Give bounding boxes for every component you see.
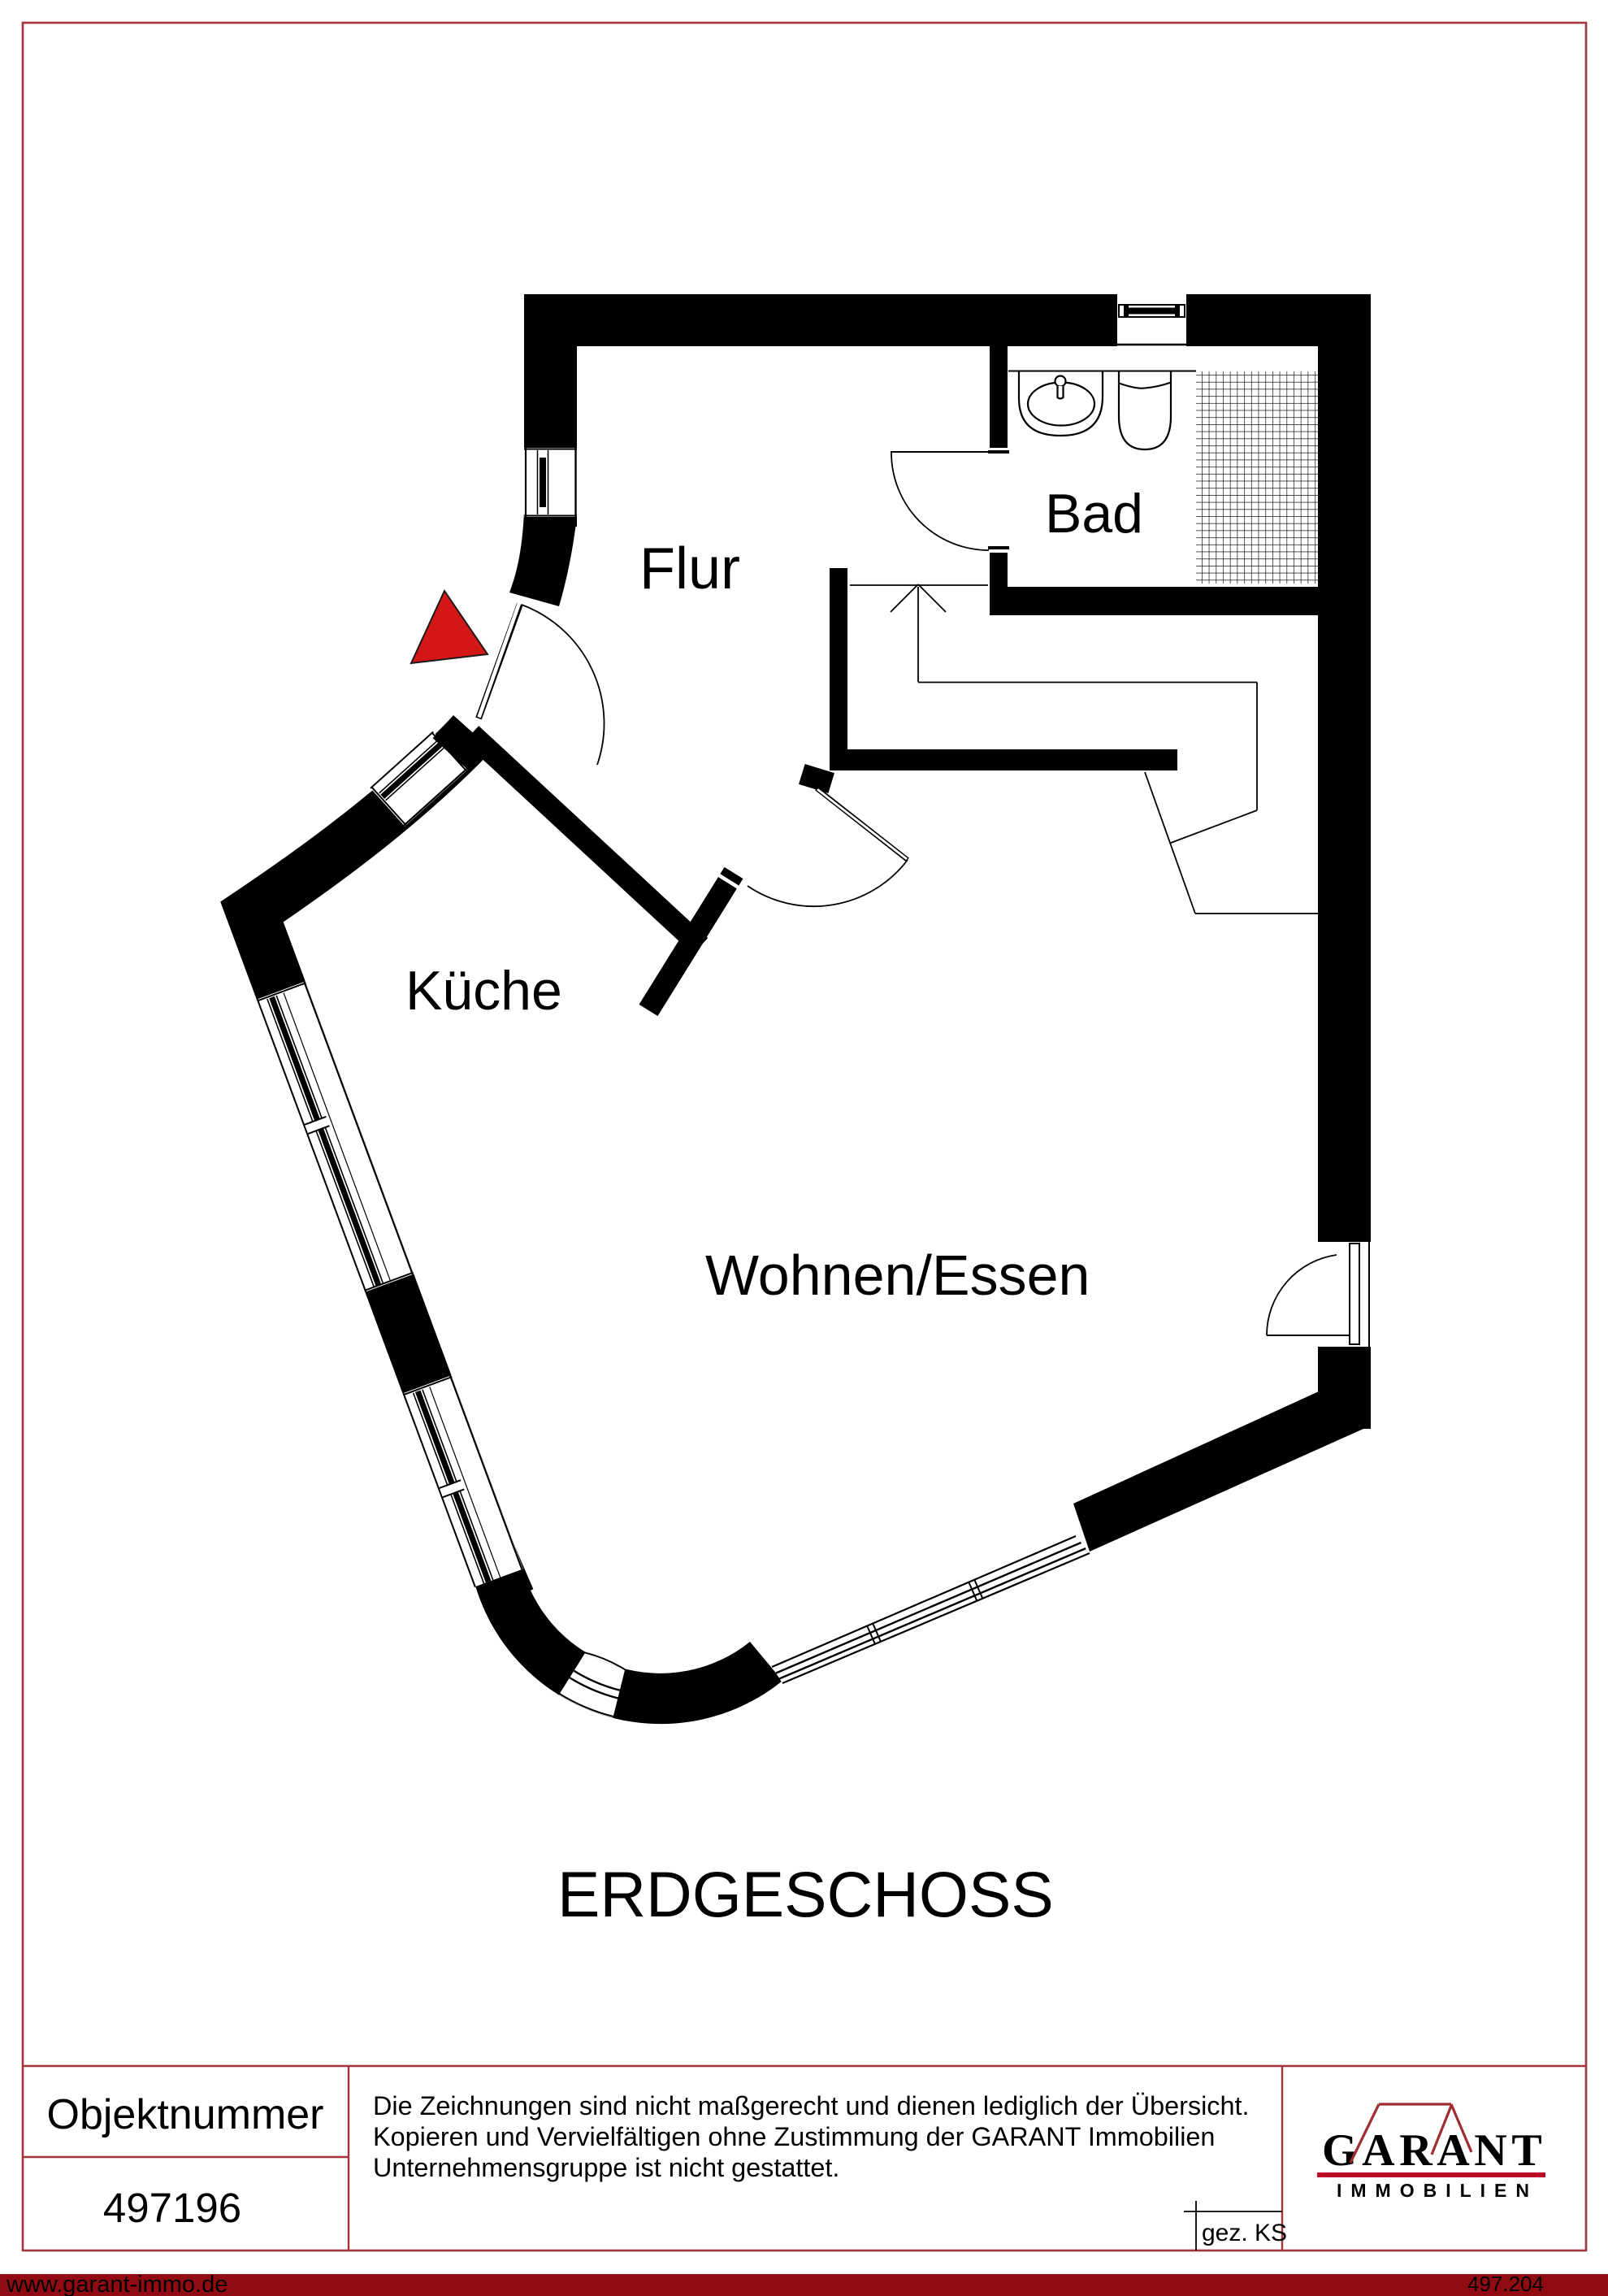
svg-text:Unternehmensgruppe ist nicht g: Unternehmensgruppe ist nicht gestattet. [373, 2153, 839, 2182]
svg-text:gez. KS: gez. KS [1202, 2220, 1287, 2246]
svg-text:Flur: Flur [639, 536, 740, 601]
svg-text:Küche: Küche [405, 960, 562, 1022]
svg-text:Objektnummer: Objektnummer [47, 2091, 324, 2138]
svg-text:497196: 497196 [103, 2185, 241, 2231]
svg-text:ERDGESCHOSS: ERDGESCHOSS [557, 1859, 1054, 1930]
svg-text:Die Zeichnungen sind nicht maß: Die Zeichnungen sind nicht maßgerecht un… [373, 2091, 1250, 2120]
svg-text:Kopieren und Vervielfältigen o: Kopieren und Vervielfältigen ohne Zustim… [373, 2122, 1215, 2151]
svg-text:Wohnen/Essen: Wohnen/Essen [705, 1243, 1090, 1307]
svg-text:www.garant-immo.de: www.garant-immo.de [6, 2272, 228, 2296]
svg-text:497.204: 497.204 [1467, 2272, 1544, 2296]
svg-text:IMMOBILIEN: IMMOBILIEN [1337, 2180, 1538, 2201]
svg-text:Bad: Bad [1045, 483, 1143, 545]
